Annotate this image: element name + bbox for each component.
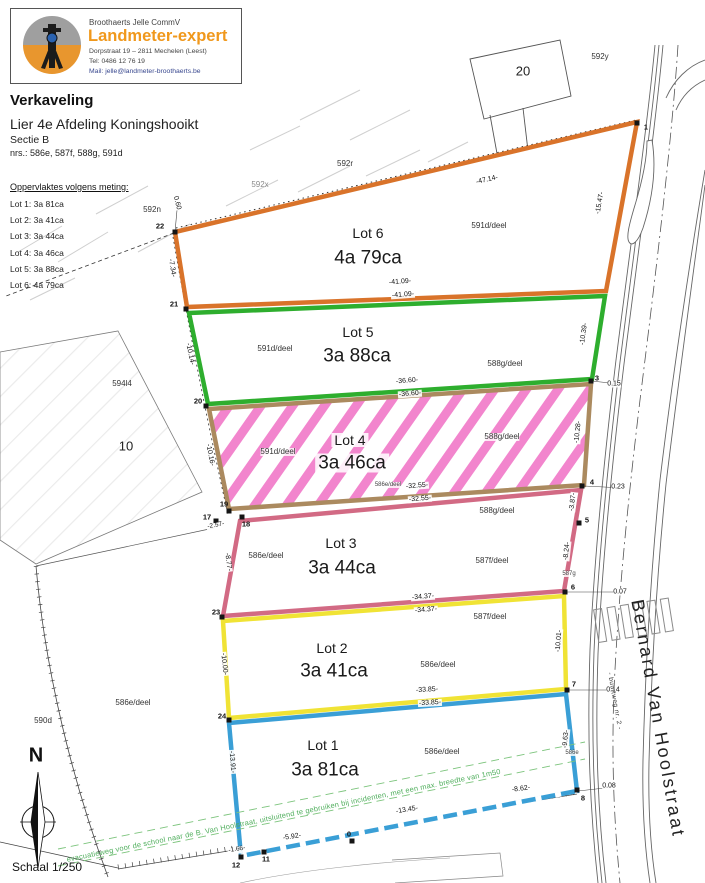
lot-4-name: Lot 4 xyxy=(331,433,368,447)
logo-box: Broothaerts Jelle CommV Landmeter-expert… xyxy=(10,8,242,84)
point-number: 17 xyxy=(203,513,211,521)
point-number: 19 xyxy=(220,500,228,508)
lot-2-area: 3a 41ca xyxy=(300,662,368,681)
parcel-label: 590d xyxy=(34,717,52,725)
brand-name: Landmeter-expert xyxy=(88,27,227,46)
parcel-label: 591d/deel xyxy=(471,222,506,230)
area-item: Lot 2: 3a 41ca xyxy=(10,212,64,228)
scale-label: Schaal 1/250 xyxy=(12,860,82,874)
parcel-label: 586e/deel xyxy=(420,661,455,669)
point-number: 6 xyxy=(571,583,575,591)
point-number: 12 xyxy=(232,861,240,869)
point-number: 23 xyxy=(212,608,220,616)
parcel-label: 587g xyxy=(562,571,575,577)
area-item: Lot 5: 3a 88ca xyxy=(10,261,64,277)
offset-value: 0.15 xyxy=(607,381,621,388)
dimension-label: -33.85- xyxy=(415,686,440,694)
parcel-label: 588g/deel xyxy=(487,360,522,368)
lot-6-area: 4a 79ca xyxy=(334,249,402,268)
area-item: Lot 6: 4a 79ca xyxy=(10,277,64,293)
offset-value: 0.08 xyxy=(602,783,616,790)
point-number: 1 xyxy=(644,123,648,131)
area-item: Lot 4: 3a 46ca xyxy=(10,245,64,261)
parcel-label: 586e/deel xyxy=(375,482,401,488)
point-number: 8 xyxy=(581,794,585,802)
plan-title: Verkaveling xyxy=(10,92,93,109)
point-number: 4 xyxy=(590,478,594,486)
point-number: 22 xyxy=(156,222,164,230)
point-number: 3 xyxy=(595,374,599,382)
lot-6-name: Lot 6 xyxy=(352,226,383,240)
point-number: 11 xyxy=(262,855,270,863)
areas-list: Lot 1: 3a 81ca Lot 2: 3a 41ca Lot 3: 3a … xyxy=(10,196,64,293)
parcel-10-outline xyxy=(0,331,202,564)
lot-3-area: 3a 44ca xyxy=(308,559,376,578)
area-item: Lot 1: 3a 81ca xyxy=(10,196,64,212)
north-arrow xyxy=(20,772,56,868)
dimension-label: -33.85- xyxy=(418,699,443,707)
parcel-label: 588g/deel xyxy=(484,433,519,441)
theodolite-icon xyxy=(23,16,81,74)
company-email: Mail: jelle@landmeter-broothaerts.be xyxy=(89,68,201,75)
offset-value: 0.23 xyxy=(611,484,625,491)
offset-value: 0.07 xyxy=(613,589,627,596)
area-item: Lot 3: 3a 44ca xyxy=(10,228,64,244)
areas-heading: Oppervlaktes volgens meting: xyxy=(10,182,129,192)
point-number: 20 xyxy=(194,397,202,405)
surveyor-logo-icon xyxy=(23,16,81,74)
company-address: Dorpstraat 19 – 2811 Mechelen (Leest) xyxy=(89,48,207,55)
parcel-label: 586e xyxy=(565,750,578,756)
building-number: 10 xyxy=(119,440,133,453)
company-phone: Tel: 0486 12 76 19 xyxy=(89,58,145,65)
point-number: 0 xyxy=(347,830,351,838)
building-number: 20 xyxy=(516,65,530,78)
parcel-label: 592n xyxy=(143,206,161,214)
north-label: N xyxy=(29,745,43,768)
parcel-label: 592x xyxy=(251,181,268,189)
point-number: 21 xyxy=(170,300,178,308)
lot-1-boundary xyxy=(229,694,577,856)
parcel-label: 586e/deel xyxy=(424,748,459,756)
point-number: 7 xyxy=(572,680,576,688)
survey-plan-page: Broothaerts Jelle CommV Landmeter-expert… xyxy=(0,0,705,883)
lot-2-name: Lot 2 xyxy=(316,641,347,655)
lot-4-area: 3a 46ca xyxy=(315,454,389,473)
parcel-label: 586e/deel xyxy=(115,699,150,707)
lot-1-area: 3a 81ca xyxy=(291,761,359,780)
parcel-label: 587f/deel xyxy=(474,613,507,621)
parcel-label: 592y xyxy=(591,53,608,61)
parcel-numbers-line: nrs.: 586e, 587f, 588g, 591d xyxy=(10,148,123,158)
point-number: 24 xyxy=(218,712,226,720)
lot-5-area: 3a 88ca xyxy=(323,347,391,366)
parcel-label: 587f/deel xyxy=(476,557,509,565)
parcel-label: 591d/deel xyxy=(260,448,295,456)
company-name: Broothaerts Jelle CommV xyxy=(89,18,180,27)
parcel-label: 594l4 xyxy=(112,380,132,388)
lot-5-name: Lot 5 xyxy=(342,325,373,339)
point-number: 18 xyxy=(242,520,250,528)
parcel-label: 592r xyxy=(337,160,353,168)
parcel-label: 588g/deel xyxy=(479,507,514,515)
section-line: Sectie B xyxy=(10,134,49,146)
lot-3-name: Lot 3 xyxy=(325,536,356,550)
point-number: 5 xyxy=(585,516,589,524)
parcel-label: 591d/deel xyxy=(257,345,292,353)
municipality-line: Lier 4e Afdeling Koningshooikt xyxy=(10,116,198,132)
parcel-label: 586e/deel xyxy=(248,552,283,560)
lot-1-name: Lot 1 xyxy=(307,738,338,752)
